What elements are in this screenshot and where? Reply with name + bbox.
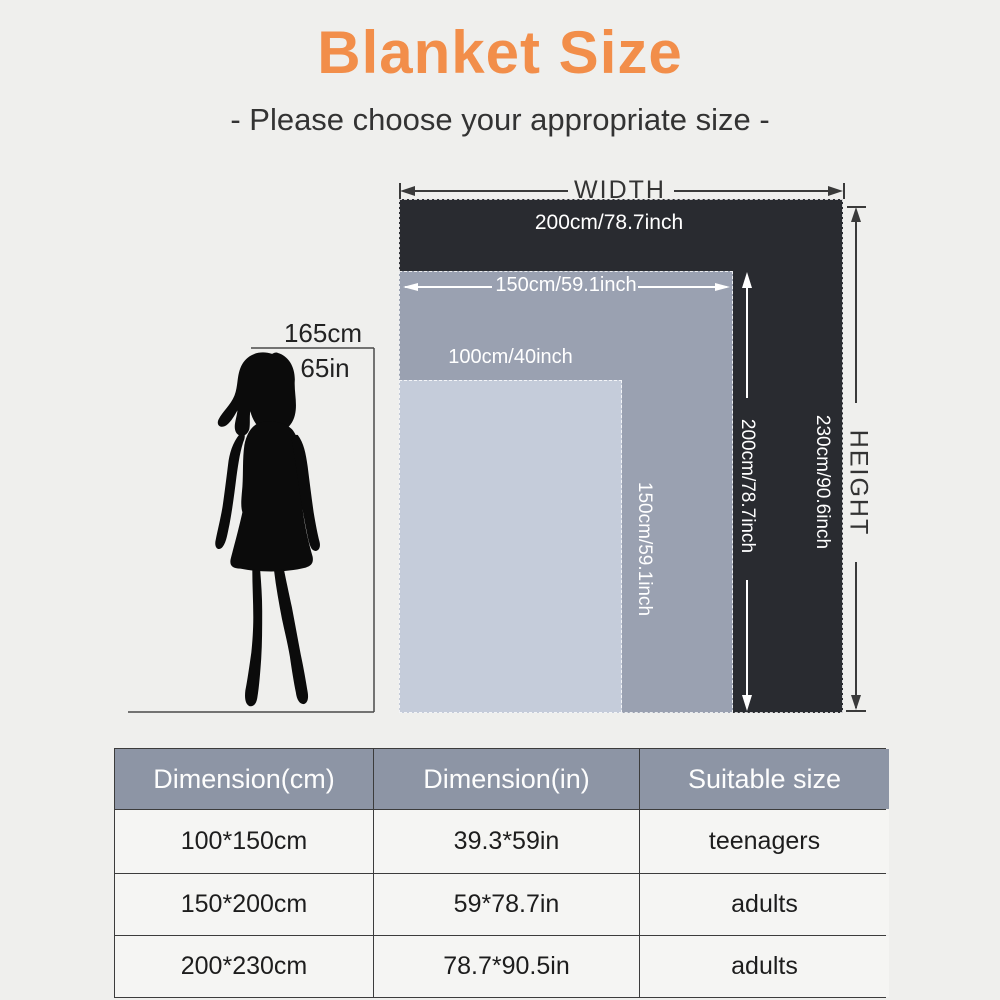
- width-left-arrowhead: [400, 186, 415, 196]
- table-cell: adults: [640, 874, 889, 935]
- blanket-150-height-label: 200cm/78.7inch: [736, 419, 758, 553]
- width-axis-label: WIDTH: [574, 176, 666, 205]
- blanket-200-width-label: 200cm/78.7inch: [399, 211, 819, 235]
- table-cell: 78.7*90.5in: [374, 936, 639, 997]
- width-right-arrowhead: [828, 186, 843, 196]
- table-cell: adults: [640, 936, 889, 997]
- table-cell: 59*78.7in: [374, 874, 639, 935]
- height-axis-label: HEIGHT: [844, 430, 873, 536]
- blanket-100-height-label: 150cm/59.1inch: [633, 482, 655, 616]
- person-height-in-label: 65in: [284, 353, 366, 384]
- table-header-suitable-size: Suitable size: [640, 749, 889, 809]
- person-silhouette: [200, 348, 360, 714]
- height-bottom-arrowhead: [851, 695, 861, 710]
- height-top-arrowhead: [851, 207, 861, 222]
- blanket-150-width-label: 150cm/59.1inch: [399, 274, 733, 297]
- page-subtitle: - Please choose your appropriate size -: [0, 102, 1000, 138]
- table-cell: 150*200cm: [115, 874, 373, 935]
- table-cell: 200*230cm: [115, 936, 373, 997]
- silhouette-right-leg: [274, 570, 308, 705]
- page-title: Blanket Size: [0, 18, 1000, 87]
- table-cell: 100*150cm: [115, 810, 373, 873]
- table-header-dimension-cm: Dimension(cm): [115, 749, 373, 809]
- silhouette-left-leg: [245, 570, 262, 707]
- blanket-100-width-label: 100cm/40inch: [399, 346, 622, 369]
- size-table: Dimension(cm) Dimension(in) Suitable siz…: [114, 748, 886, 998]
- person-height-cm-label: 165cm: [248, 318, 362, 349]
- blanket-200-height-label: 230cm/90.6inch: [811, 415, 833, 549]
- table-cell: teenagers: [640, 810, 889, 873]
- table-cell: 39.3*59in: [374, 810, 639, 873]
- blanket-100x150-rect: [399, 380, 622, 713]
- table-header-dimension-in: Dimension(in): [374, 749, 639, 809]
